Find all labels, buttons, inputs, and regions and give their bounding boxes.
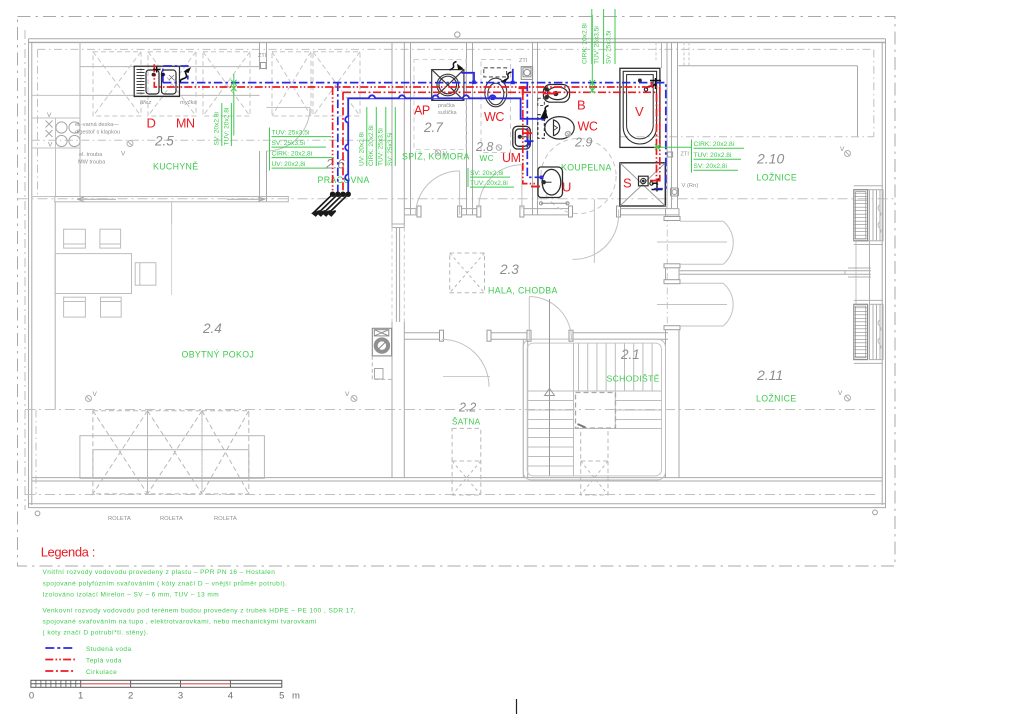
svg-text:myčka: myčka xyxy=(180,100,198,106)
svg-text:Cirkulace: Cirkulace xyxy=(86,669,117,676)
svg-text:el.-varná deska—: el.-varná deska— xyxy=(75,122,119,128)
svg-text:Vnitřní rozvody vodovodu prove: Vnitřní rozvody vodovodu provedeny z pla… xyxy=(43,569,276,576)
svg-text:SPÍŽ, KOMORA: SPÍŽ, KOMORA xyxy=(402,152,470,162)
svg-text:5: 5 xyxy=(279,691,284,702)
svg-text:2: 2 xyxy=(128,691,133,702)
svg-text:2.3: 2.3 xyxy=(499,262,519,277)
svg-text:dřez: dřez xyxy=(140,100,151,106)
svg-text:2.8: 2.8 xyxy=(475,140,493,154)
svg-text:D: D xyxy=(147,116,156,131)
svg-text:V: V xyxy=(345,391,350,398)
svg-text:TUV: 25x3,5i: TUV: 25x3,5i xyxy=(378,128,385,166)
svg-text:V: V xyxy=(93,391,98,398)
svg-text:TUV: 20x2.8i: TUV: 20x2.8i xyxy=(694,152,732,159)
svg-text:V: V xyxy=(47,112,52,119)
svg-text:SV: 25x3,5i: SV: 25x3,5i xyxy=(605,30,612,64)
svg-text:CIRK: 20x2.8i: CIRK: 20x2.8i xyxy=(368,125,375,166)
svg-text:HALA, CHODBA: HALA, CHODBA xyxy=(488,286,558,296)
svg-text:SCHODIŠTĚ: SCHODIŠTĚ xyxy=(607,374,660,384)
svg-text:LOŽNICE: LOŽNICE xyxy=(756,394,797,404)
svg-text:Studená voda: Studená voda xyxy=(86,646,132,653)
svg-text:m: m xyxy=(292,691,300,702)
svg-text:AP: AP xyxy=(414,104,430,118)
svg-text:U: U xyxy=(562,180,571,195)
svg-text:ROLETA: ROLETA xyxy=(160,516,183,522)
svg-text:2.11: 2.11 xyxy=(756,367,783,383)
svg-text:SV: 20x2,8i: SV: 20x2,8i xyxy=(694,163,728,170)
svg-text:TUV: 25x3,5i: TUV: 25x3,5i xyxy=(594,26,601,64)
svg-text:KOUPELNA: KOUPELNA xyxy=(561,163,612,173)
svg-text:( kóty značí D potrubí*tl. stě: ( kóty značí D potrubí*tl. stěny). xyxy=(43,630,149,637)
svg-text:2.7: 2.7 xyxy=(423,120,443,135)
svg-text:CIRK: 20x2.8i: CIRK: 20x2.8i xyxy=(694,141,735,148)
svg-text:S: S xyxy=(623,176,632,191)
svg-text:Izolováno izolací Mirelon – SV: Izolováno izolací Mirelon – SV – 6 mm, T… xyxy=(43,592,220,599)
svg-text:2.2: 2.2 xyxy=(458,401,476,415)
svg-text:OBYTNÝ POKOJ: OBYTNÝ POKOJ xyxy=(182,350,255,360)
svg-text:KUCHYNĚ: KUCHYNĚ xyxy=(153,162,198,172)
svg-text:WC: WC xyxy=(484,110,504,124)
svg-text:Teplá voda: Teplá voda xyxy=(86,657,122,664)
svg-text:V: V xyxy=(635,104,644,119)
svg-text:Legenda :: Legenda : xyxy=(41,545,95,560)
svg-text:1: 1 xyxy=(78,691,83,702)
svg-text:UV: 20x2.8i: UV: 20x2.8i xyxy=(359,132,366,166)
svg-text:LOŽNICE: LOŽNICE xyxy=(757,173,798,183)
svg-text:SV: 20x2,8i: SV: 20x2,8i xyxy=(470,170,504,177)
svg-text:el. trouba: el. trouba xyxy=(79,152,103,158)
svg-text:2.4: 2.4 xyxy=(202,321,222,336)
svg-text:pračka: pračka xyxy=(438,103,456,109)
svg-text:2.5: 2.5 xyxy=(154,134,174,149)
svg-text:V (Rn): V (Rn) xyxy=(682,183,699,189)
svg-text:2.1: 2.1 xyxy=(620,347,640,362)
svg-text:UM: UM xyxy=(502,151,521,165)
svg-text:spojované polyfúzním svařování: spojované polyfúzním svařováním ( kóty z… xyxy=(43,580,288,588)
svg-text:WC: WC xyxy=(480,154,494,163)
svg-text:ROLETA: ROLETA xyxy=(108,516,131,522)
svg-text:V: V xyxy=(121,151,126,158)
svg-text:Venkovní rozvody vodovodu pod: Venkovní rozvody vodovodu pod terénem bu… xyxy=(43,608,357,615)
svg-text:digestoř s klapkou: digestoř s klapkou xyxy=(75,129,120,135)
svg-text:ŠATNA: ŠATNA xyxy=(452,417,481,427)
svg-text:ZTI: ZTI xyxy=(519,58,528,64)
svg-text:V: V xyxy=(838,390,843,397)
svg-text:TUV: 20x2,8i: TUV: 20x2,8i xyxy=(470,180,508,187)
svg-text:2.10: 2.10 xyxy=(756,151,784,167)
svg-text:WC: WC xyxy=(578,120,598,134)
svg-text:V: V xyxy=(443,151,448,158)
svg-text:sušička: sušička xyxy=(438,110,458,116)
svg-text:SV: 25x3,5i: SV: 25x3,5i xyxy=(272,140,306,147)
svg-text:CIRK: 20x2,8i: CIRK: 20x2,8i xyxy=(272,151,313,158)
svg-text:ROLETA: ROLETA xyxy=(214,516,237,522)
svg-text:ZTI: ZTI xyxy=(258,53,267,59)
svg-text:MW trouba: MW trouba xyxy=(78,160,106,166)
svg-text:MN: MN xyxy=(176,117,195,131)
svg-text:2.9: 2.9 xyxy=(574,136,592,150)
svg-text:TUV: 20x2.8i: TUV: 20x2.8i xyxy=(223,107,230,145)
svg-text:spojované svařováním na tupo ,: spojované svařováním na tupo , elektrotv… xyxy=(43,619,317,626)
svg-text:V: V xyxy=(840,146,845,153)
svg-text:4: 4 xyxy=(228,691,233,702)
svg-text:CIRK: 20x2.8l: CIRK: 20x2.8l xyxy=(582,23,589,64)
svg-text:SV: 25x3,5i: SV: 25x3,5i xyxy=(387,132,394,166)
svg-text:3: 3 xyxy=(178,691,183,702)
svg-text:V: V xyxy=(48,142,53,149)
svg-text:0: 0 xyxy=(29,691,34,702)
svg-text:ZTI: ZTI xyxy=(681,152,690,158)
svg-text:UV: 20x2,8i: UV: 20x2,8i xyxy=(272,161,306,168)
svg-text:B: B xyxy=(577,98,585,113)
svg-text:SV: 20x2.8i: SV: 20x2.8i xyxy=(214,111,221,145)
svg-text:TUV: 25x3,5i: TUV: 25x3,5i xyxy=(272,130,310,137)
